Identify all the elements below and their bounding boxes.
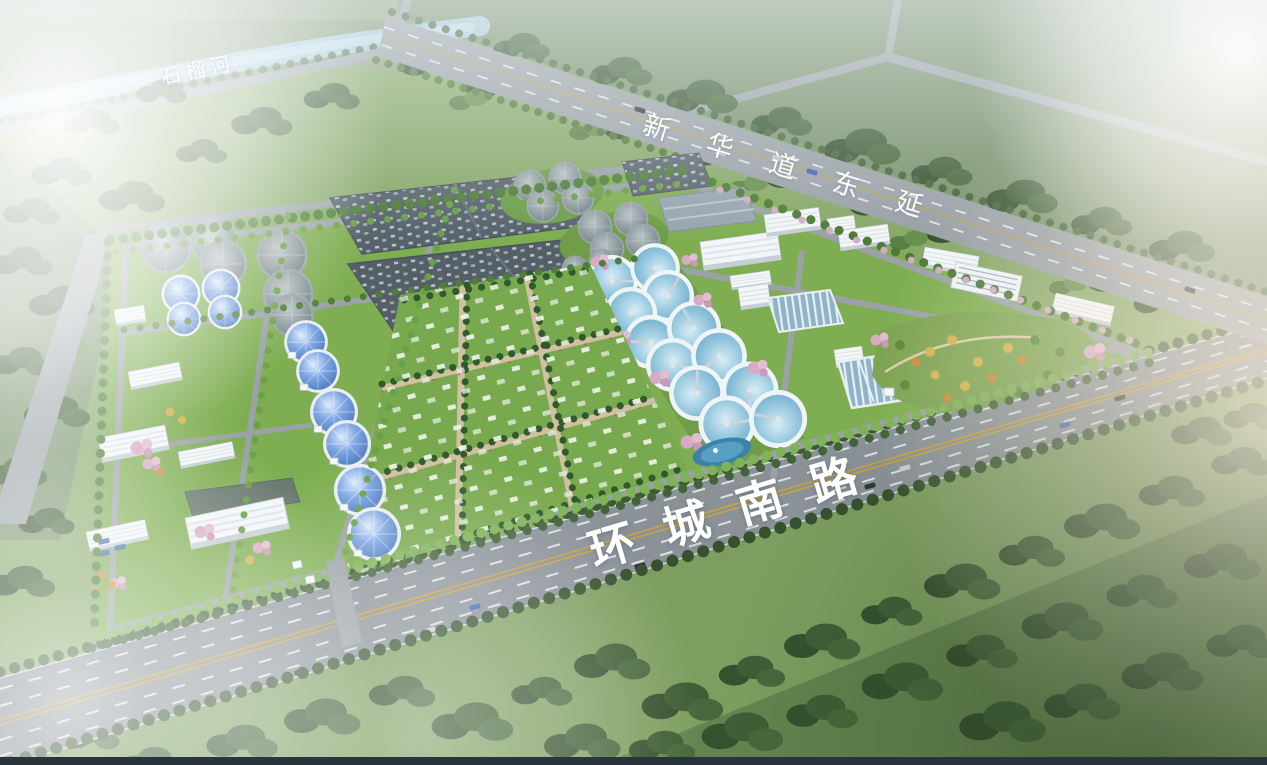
aerial-rendering: 石榴河 新华道东延 环城南路 [0, 0, 1267, 765]
bottom-edge-strip [0, 757, 1267, 765]
rendering-canvas [0, 0, 1267, 765]
